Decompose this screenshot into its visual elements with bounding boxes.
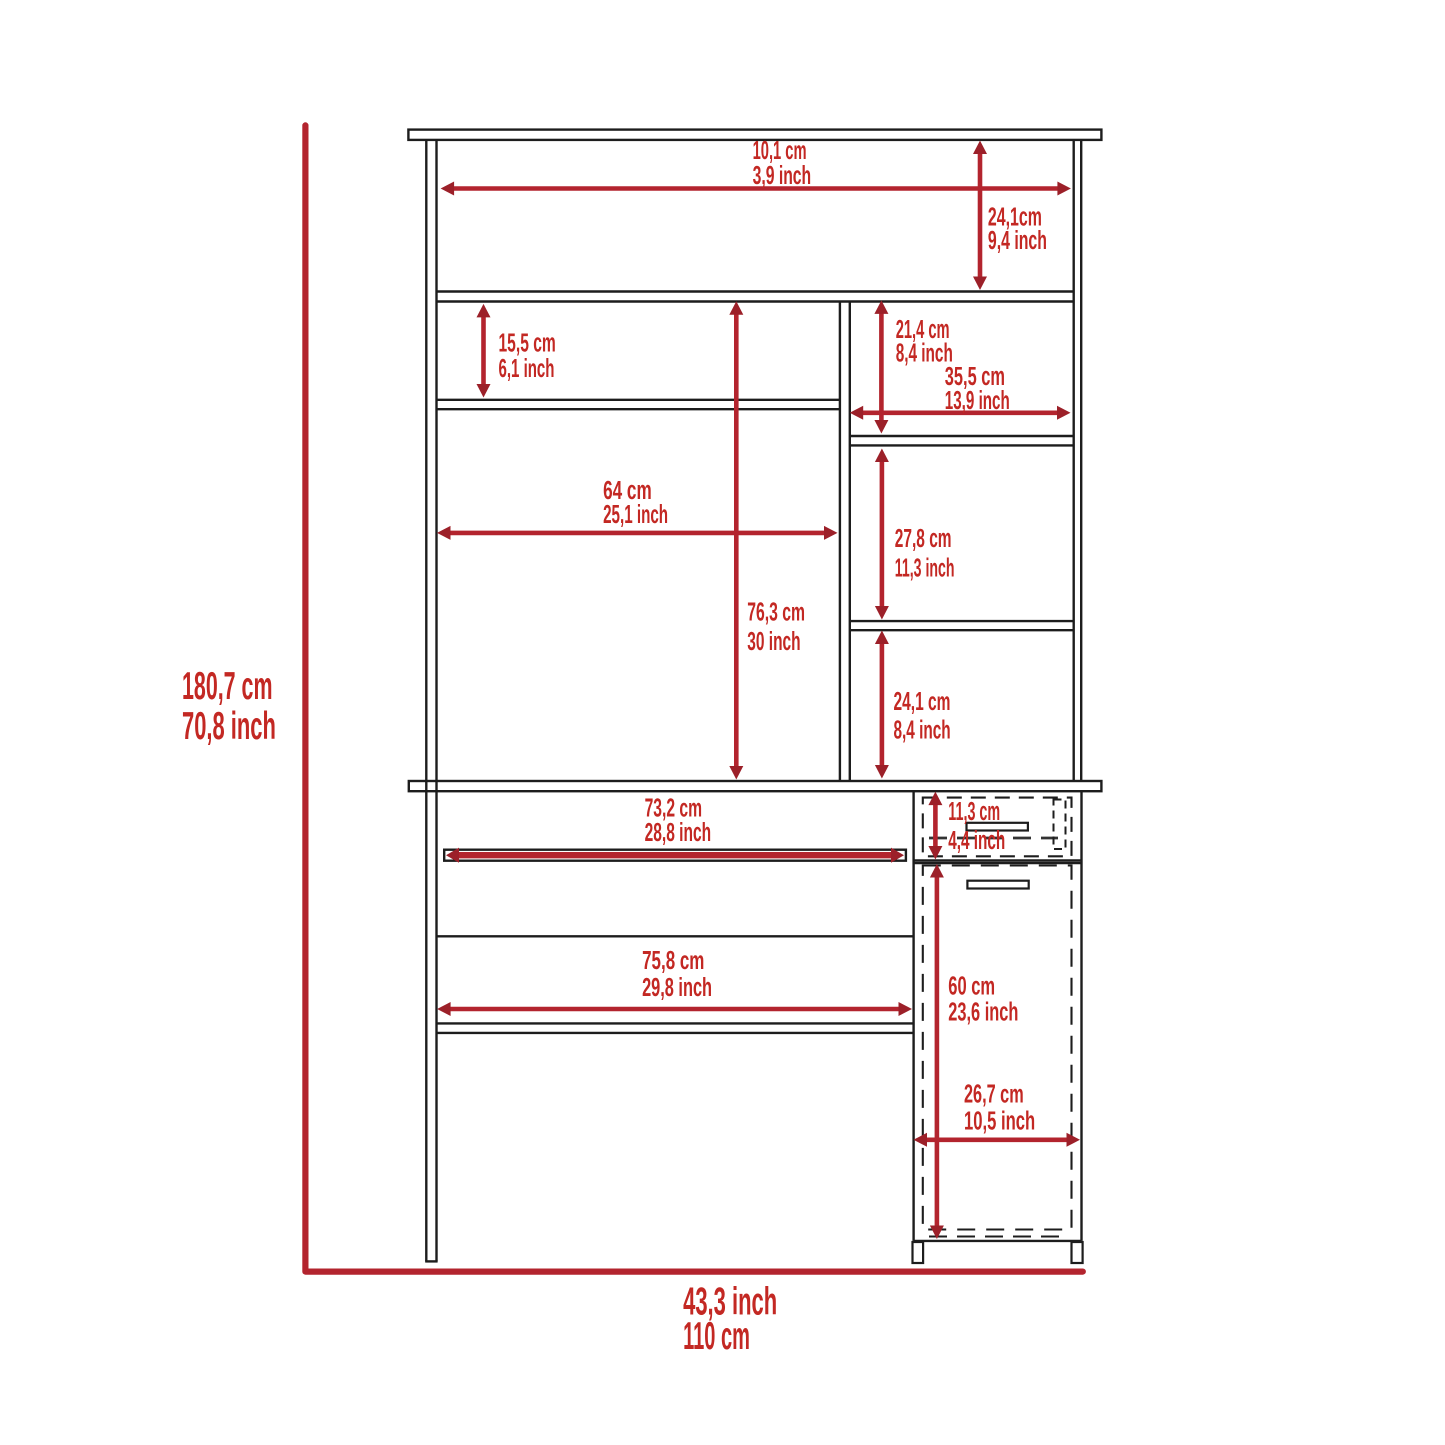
- svg-text:25,1 inch: 25,1 inch: [603, 500, 668, 529]
- svg-text:11,3 inch: 11,3 inch: [895, 554, 955, 583]
- svg-text:24,1 cm: 24,1 cm: [894, 686, 951, 716]
- svg-text:10,5 inch: 10,5 inch: [964, 1106, 1035, 1136]
- svg-text:70,8 inch: 70,8 inch: [182, 703, 276, 747]
- svg-text:27,8 cm: 27,8 cm: [895, 523, 952, 553]
- svg-text:30 inch: 30 inch: [747, 626, 800, 656]
- svg-text:23,6 inch: 23,6 inch: [948, 996, 1018, 1026]
- svg-text:110 cm: 110 cm: [683, 1314, 750, 1358]
- svg-text:28,8 inch: 28,8 inch: [645, 816, 711, 846]
- svg-text:4,4 inch: 4,4 inch: [948, 826, 1005, 855]
- svg-text:26,7 cm: 26,7 cm: [964, 1078, 1024, 1108]
- svg-text:3,9 inch: 3,9 inch: [753, 160, 812, 190]
- svg-text:180,7 cm: 180,7 cm: [182, 664, 272, 707]
- svg-text:29,8 inch: 29,8 inch: [642, 972, 712, 1002]
- svg-text:75,8 cm: 75,8 cm: [642, 945, 704, 975]
- svg-text:8,4 inch: 8,4 inch: [894, 715, 951, 744]
- svg-text:76,3 cm: 76,3 cm: [747, 596, 805, 626]
- svg-text:13,9 inch: 13,9 inch: [945, 386, 1010, 415]
- svg-text:11,3 cm: 11,3 cm: [948, 798, 1000, 827]
- svg-text:6,1 inch: 6,1 inch: [499, 354, 555, 383]
- svg-text:9,4 inch: 9,4 inch: [988, 225, 1047, 255]
